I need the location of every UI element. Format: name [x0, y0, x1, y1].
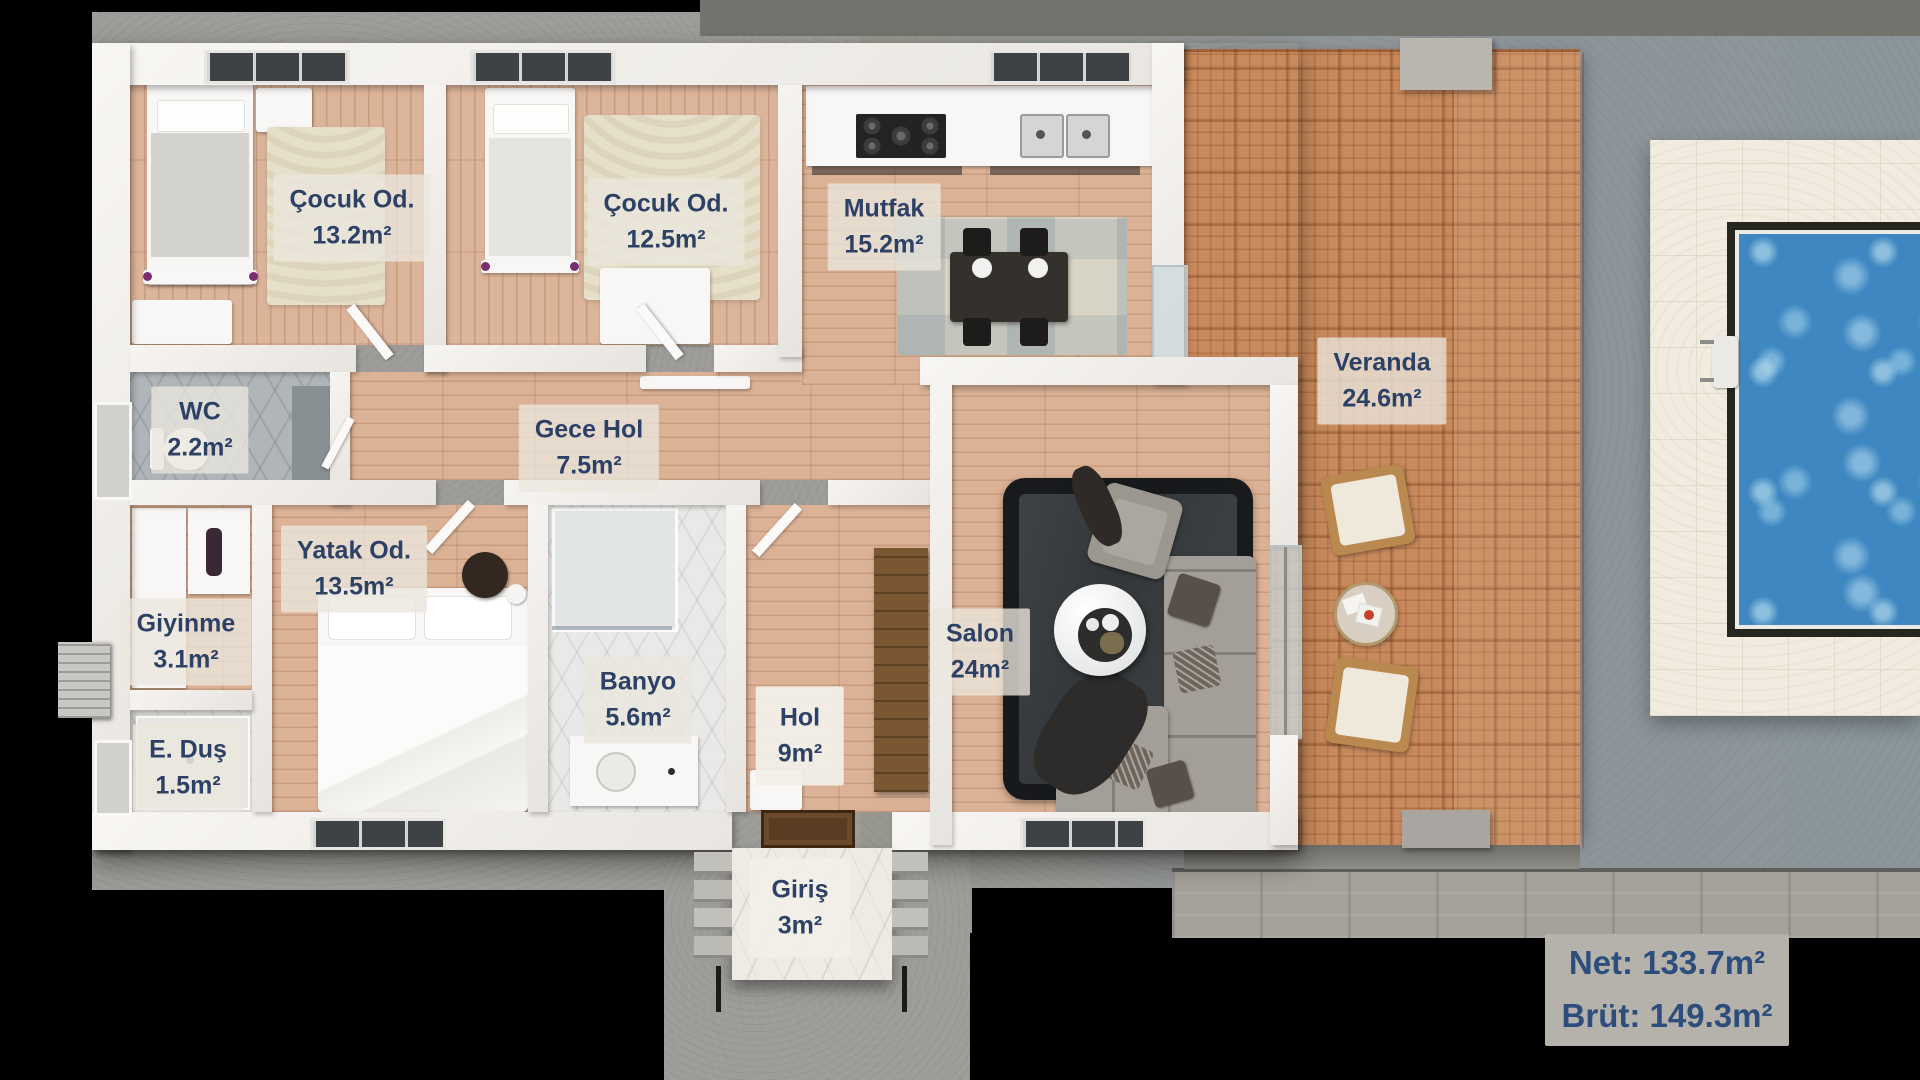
room-name: E. Duş — [149, 736, 227, 764]
net-area-text: Net: 133.7m² — [1545, 937, 1789, 990]
room-area: 24m² — [946, 652, 1014, 688]
wall-banyo-hol — [726, 505, 746, 812]
porch-step — [892, 880, 928, 902]
faucet-dot — [668, 768, 675, 775]
room-label-gece-hol: Gece Hol 7.5m² — [519, 405, 659, 492]
pool-ladder-rail — [1700, 340, 1714, 344]
room-name: Mutfak — [844, 195, 925, 223]
bed-knob — [249, 272, 258, 281]
round-nightstand — [462, 552, 508, 598]
bed-knob — [570, 262, 579, 271]
ac-unit — [58, 642, 110, 718]
dining-chair — [963, 318, 991, 346]
chair-cushion — [1335, 667, 1410, 744]
window — [1020, 818, 1146, 850]
desk — [132, 300, 232, 344]
paver-strip — [1172, 868, 1920, 938]
veranda-step-top — [1400, 38, 1492, 90]
room-area: 13.5m² — [297, 569, 411, 605]
room-label-wc: WC 2.2m² — [151, 387, 248, 474]
veranda-walk-band — [1452, 52, 1584, 848]
bed-footboard — [481, 260, 579, 273]
window — [310, 818, 446, 850]
bed-knob — [143, 272, 152, 281]
table-lamp — [506, 584, 526, 604]
room-name: Giyinme — [137, 610, 236, 638]
room-label-giyinme: Giyinme 3.1m² — [121, 599, 252, 686]
bed-pillow — [424, 596, 512, 640]
bed-pillow — [157, 100, 245, 132]
window — [204, 50, 350, 84]
dining-chair — [963, 228, 991, 256]
shower-glass — [552, 626, 672, 630]
sink-drain — [1036, 130, 1045, 139]
floor-pass — [802, 357, 920, 385]
nightstand — [256, 88, 312, 132]
tray-plant — [1100, 632, 1124, 654]
sofa-pillow — [1172, 644, 1222, 694]
porch-step — [892, 908, 928, 930]
salon-sliding-door — [1270, 545, 1302, 739]
room-name: Veranda — [1333, 349, 1430, 377]
room-name: Salon — [946, 620, 1014, 648]
tv-cabinet — [874, 548, 928, 792]
room-name: Giriş — [772, 876, 829, 904]
dresser-ornament — [206, 528, 222, 576]
room-area: 12.5m² — [603, 222, 728, 258]
room-label-salon: Salon 24m² — [930, 609, 1030, 696]
chair-cushion — [1330, 474, 1406, 547]
tray-cup — [1102, 614, 1119, 631]
wall-hall-bottom — [828, 480, 930, 505]
tray-cup — [1086, 618, 1099, 631]
brut-area-text: Brüt: 149.3m² — [1545, 990, 1789, 1043]
veranda-step-bottom — [1402, 810, 1490, 848]
room-label-banyo: Banyo 5.6m² — [584, 657, 692, 744]
room-area: 5.6m² — [600, 700, 676, 736]
room-area: 24.6m² — [1333, 381, 1430, 417]
porch-post — [902, 966, 907, 1012]
porch-step — [694, 908, 732, 930]
bed-blanket — [151, 133, 249, 257]
stove-hob — [856, 114, 946, 158]
wall-hall-bottom — [130, 480, 436, 505]
wall-giyinme-dus — [130, 690, 252, 710]
table-fruit — [1364, 610, 1374, 620]
room-name: Yatak Od. — [297, 537, 411, 565]
wall-yatak-banyo — [528, 505, 548, 812]
porch-step — [694, 936, 732, 958]
porch-step — [694, 880, 732, 902]
window — [988, 50, 1134, 84]
porch-step — [892, 936, 928, 958]
room-area: 2.2m² — [167, 430, 232, 466]
wall-mutfak-salon — [920, 357, 1298, 385]
room-name: Çocuk Od. — [289, 186, 414, 214]
room-label-cocuk-2: Çocuk Od. 12.5m² — [587, 179, 744, 266]
room-area: 1.5m² — [149, 768, 227, 804]
door-track — [1284, 547, 1287, 737]
room-name: Çocuk Od. — [603, 190, 728, 218]
wall-salon-right-lower — [1270, 735, 1298, 845]
room-name: Gece Hol — [535, 416, 643, 444]
pool-ladder — [1712, 336, 1738, 388]
pool-frame — [1727, 222, 1920, 637]
porch-step — [892, 852, 928, 874]
veranda-armchair — [1320, 463, 1417, 556]
room-area: 13.2m² — [289, 218, 414, 254]
vanity-basin — [596, 752, 636, 792]
window-side — [94, 402, 132, 500]
floor-plan-scene: Çocuk Od. 13.2m² Çocuk Od. 12.5m² Mutfak… — [0, 0, 1920, 1080]
pool-ladder-rail — [1700, 378, 1714, 382]
bed-footboard — [143, 270, 257, 284]
sink-drain — [1082, 130, 1091, 139]
radiator — [640, 376, 750, 389]
plate — [1028, 258, 1048, 278]
wall-giyinme-right — [252, 505, 272, 812]
room-label-yatak: Yatak Od. 13.5m² — [281, 526, 427, 613]
counter-shadow-vent — [990, 166, 1140, 175]
wall-kitchen-left — [778, 85, 802, 357]
room-label-veranda: Veranda 24.6m² — [1317, 338, 1446, 425]
room-label-giris: Giriş 3m² — [750, 859, 851, 958]
dining-table — [950, 252, 1068, 322]
veranda-armchair — [1324, 657, 1419, 754]
bed-pillow — [493, 104, 569, 134]
room-label-mutfak: Mutfak 15.2m² — [828, 184, 941, 271]
front-door — [761, 810, 855, 848]
dining-chair — [1020, 318, 1048, 346]
window-side — [94, 740, 132, 816]
wall-kids-bottom — [424, 345, 646, 372]
porch-post — [716, 966, 721, 1012]
yard-top-band — [700, 0, 1920, 36]
room-label-hol: Hol 9m² — [756, 687, 844, 786]
kitchen-veranda-door — [1152, 265, 1188, 364]
room-label-e-dus: E. Duş 1.5m² — [133, 725, 243, 812]
ground-notch-black — [972, 888, 1172, 1080]
pool-water — [1735, 230, 1920, 629]
room-area: 9m² — [778, 736, 822, 772]
bed-knob — [481, 262, 490, 271]
room-name: Hol — [780, 704, 820, 732]
room-label-cocuk-1: Çocuk Od. 13.2m² — [273, 175, 430, 262]
wall-kids-bottom — [130, 345, 356, 372]
wall-salon-right-upper — [1270, 385, 1298, 545]
dining-chair — [1020, 228, 1048, 256]
room-area: 15.2m² — [844, 227, 925, 263]
bed-blanket — [489, 138, 571, 256]
plate — [972, 258, 992, 278]
counter-shadow-vent — [812, 166, 962, 175]
room-area: 3.1m² — [137, 642, 236, 678]
room-name: Banyo — [600, 668, 676, 696]
bed-duvet — [318, 646, 528, 812]
room-area: 7.5m² — [535, 448, 643, 484]
room-name: WC — [179, 398, 221, 426]
shower-enclosure — [552, 508, 678, 632]
porch-step — [694, 852, 732, 874]
window — [470, 50, 616, 84]
room-area: 3m² — [772, 908, 829, 944]
area-summary-box: Net: 133.7m² Brüt: 149.3m² — [1545, 934, 1789, 1046]
